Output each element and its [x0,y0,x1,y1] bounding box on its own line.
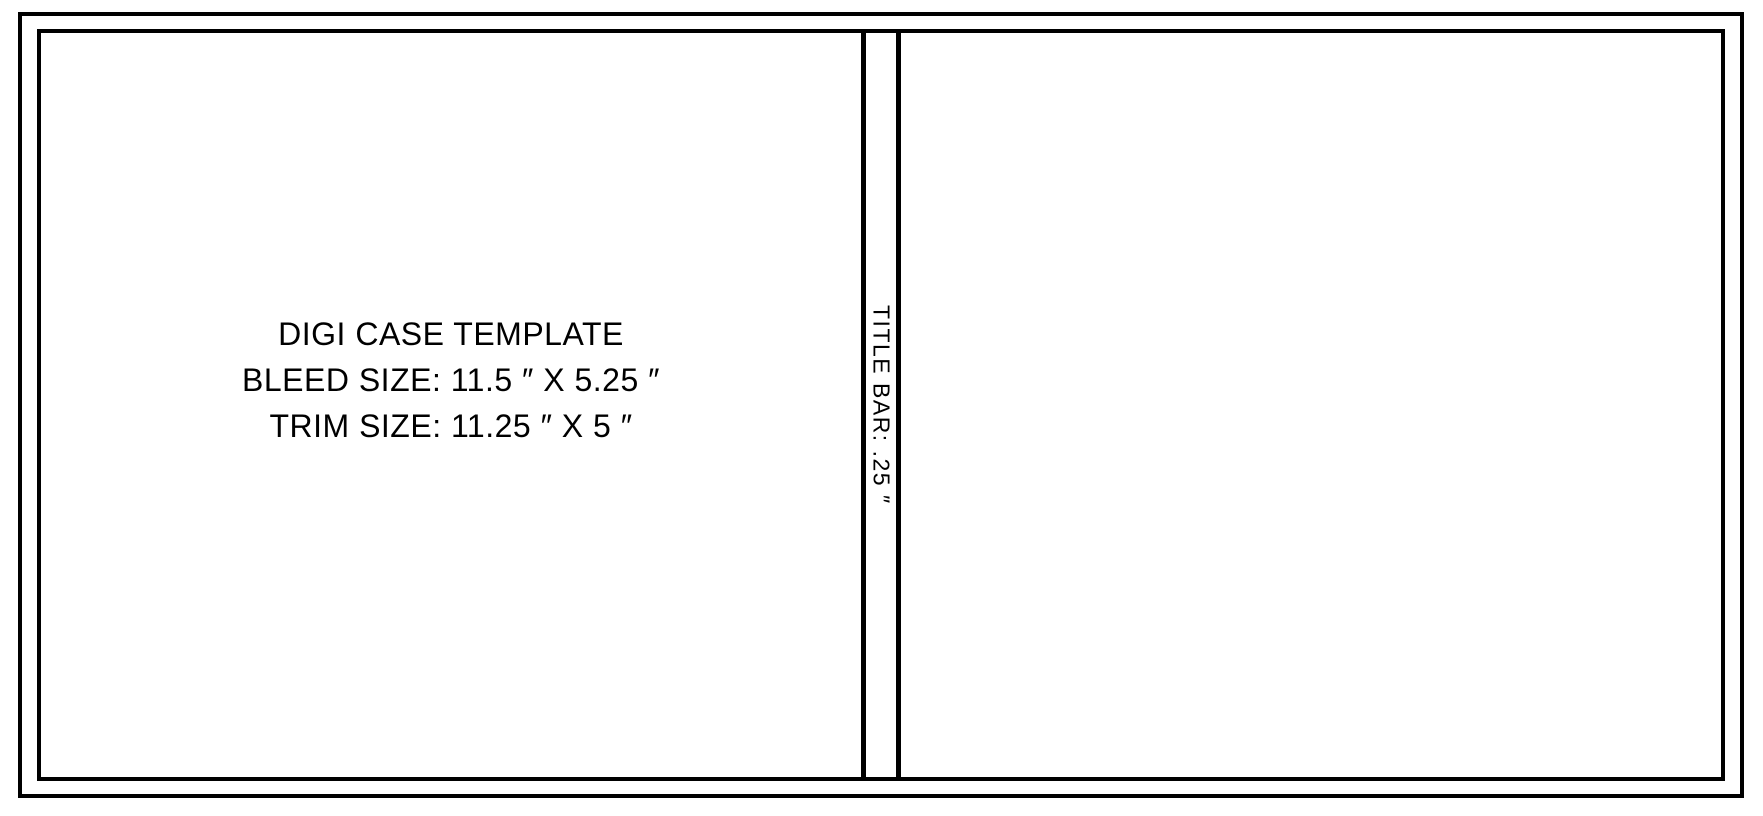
trim-size-label: TRIM SIZE: 11.25 ″ X 5 ″ [41,403,861,449]
back-cover-panel: DIGI CASE TEMPLATE BLEED SIZE: 11.5 ″ X … [41,33,861,777]
title-bar-spine: TITLE BAR: .25 ″ [861,33,901,777]
bleed-size-label: BLEED SIZE: 11.5 ″ X 5.25 ″ [41,357,861,403]
template-info-block: DIGI CASE TEMPLATE BLEED SIZE: 11.5 ″ X … [41,311,861,449]
front-cover-panel [901,33,1721,777]
bleed-outline: DIGI CASE TEMPLATE BLEED SIZE: 11.5 ″ X … [18,12,1744,798]
template-title: DIGI CASE TEMPLATE [41,311,861,357]
digi-case-template-diagram: DIGI CASE TEMPLATE BLEED SIZE: 11.5 ″ X … [0,0,1763,816]
title-bar-label: TITLE BAR: .25 ″ [868,305,895,505]
trim-outline: DIGI CASE TEMPLATE BLEED SIZE: 11.5 ″ X … [37,29,1725,781]
